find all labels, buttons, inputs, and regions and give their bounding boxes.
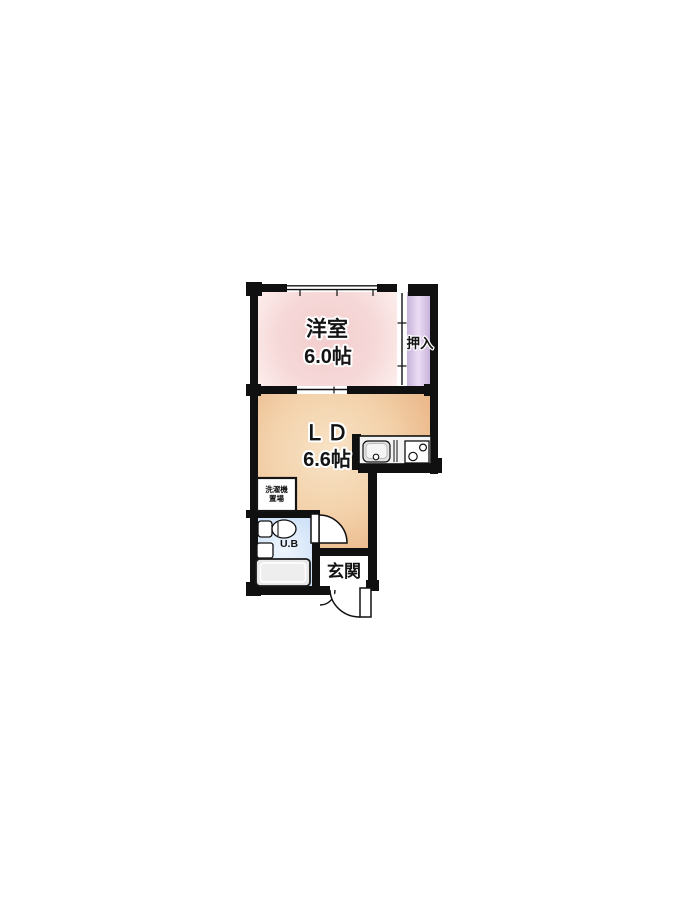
laundry-label-line2: 置場 — [269, 493, 284, 503]
sink-drain — [373, 454, 379, 460]
closet-label: 押入 — [407, 335, 434, 351]
floor-plan: 洗濯機 置場 洋室 6.0帖 ＬＤ 6.6帖 押入 玄関 U.B — [0, 0, 700, 897]
floor-plan-page: 洗濯機 置場 洋室 6.0帖 ＬＤ 6.6帖 押入 玄関 U.B — [0, 0, 700, 897]
laundry-space: 洗濯機 置場 — [257, 478, 296, 511]
kitchen-counter — [359, 436, 431, 464]
living-dining-label: ＬＤ — [304, 422, 350, 445]
stove-burner-large — [409, 452, 417, 460]
living-dining-size: 6.6帖 — [303, 448, 351, 471]
laundry-label-line1: 洗濯機 — [265, 484, 288, 494]
stove — [405, 441, 429, 463]
bathtub — [256, 559, 310, 586]
unit-bath-label: U.B — [280, 538, 299, 550]
entrance-label: 玄関 — [327, 561, 361, 581]
room-sliding-door — [297, 386, 347, 394]
toilet — [258, 520, 296, 538]
western-room-size: 6.0帖 — [304, 345, 352, 368]
closet-sliding-door — [397, 292, 407, 386]
washbasin — [257, 543, 273, 558]
stove-burner-small — [420, 444, 427, 451]
western-room-label: 洋室 — [306, 317, 348, 341]
